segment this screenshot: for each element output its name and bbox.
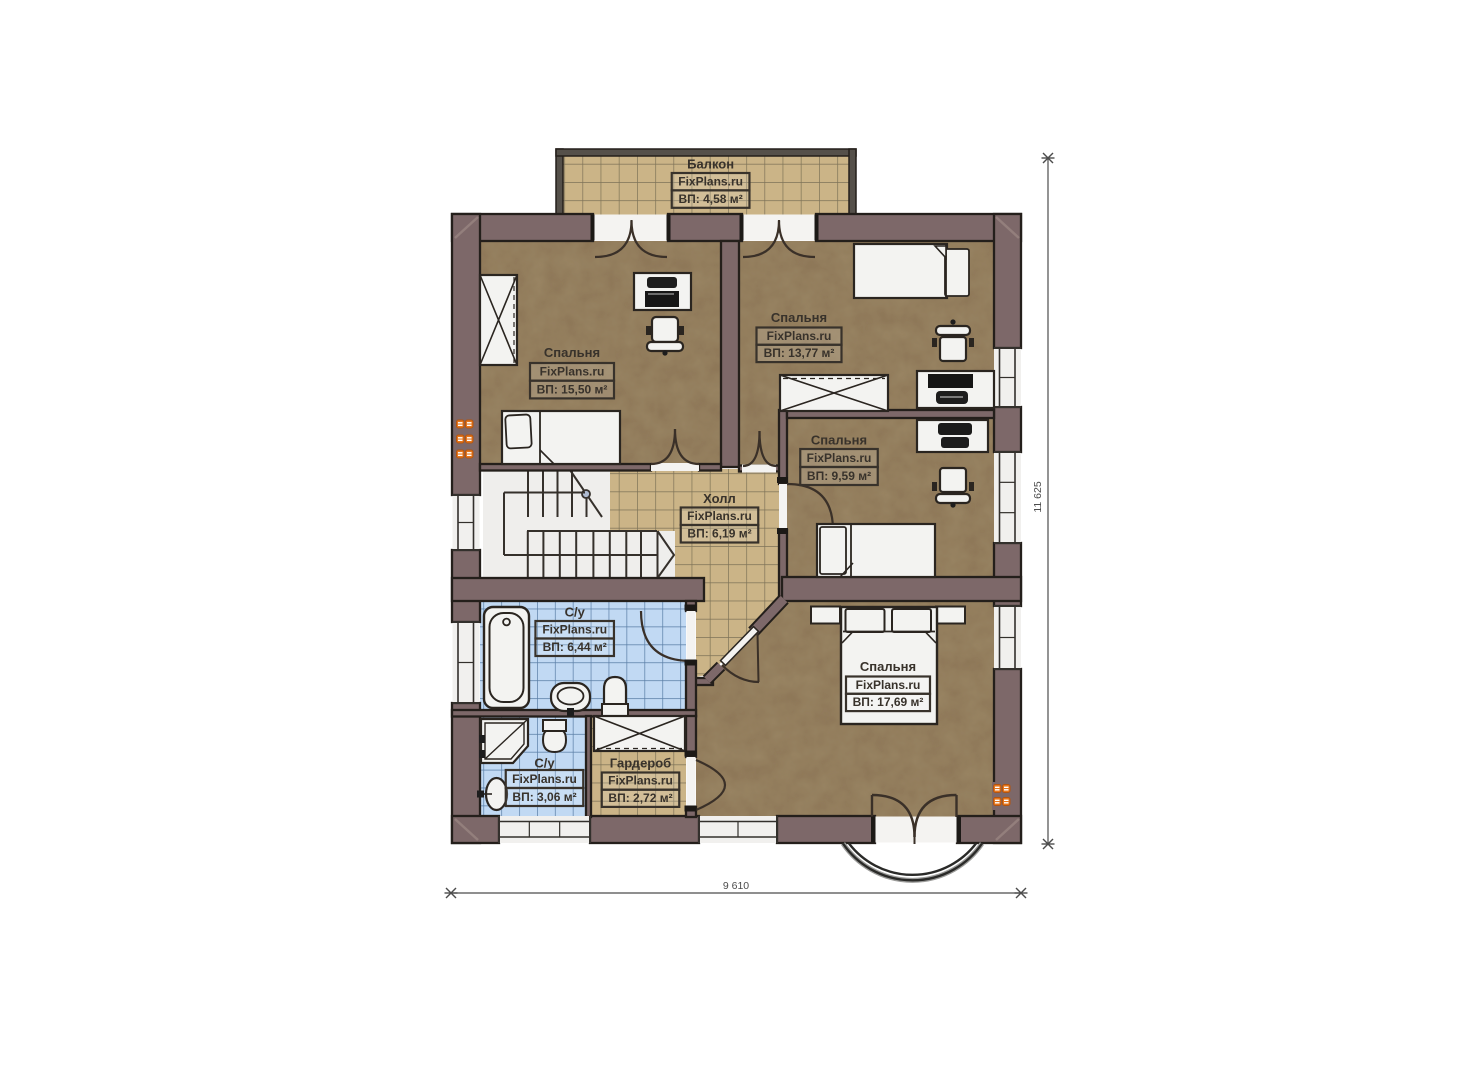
svg-text:FixPlans.ru: FixPlans.ru	[542, 623, 607, 637]
svg-text:ВП: 17,69 м²: ВП: 17,69 м²	[853, 695, 924, 709]
svg-text:Спальня: Спальня	[544, 345, 600, 360]
svg-text:FixPlans.ru: FixPlans.ru	[856, 678, 921, 692]
svg-text:FixPlans.ru: FixPlans.ru	[807, 451, 872, 465]
svg-text:9 610: 9 610	[723, 880, 749, 892]
svg-text:С/у: С/у	[565, 605, 586, 620]
svg-text:11 625: 11 625	[1032, 481, 1044, 512]
svg-text:Балкон: Балкон	[687, 157, 734, 172]
svg-text:Спальня: Спальня	[771, 310, 827, 325]
svg-text:ВП: 6,44 м²: ВП: 6,44 м²	[543, 640, 607, 654]
svg-text:FixPlans.ru: FixPlans.ru	[608, 774, 673, 788]
svg-text:ВП: 4,58 м²: ВП: 4,58 м²	[679, 192, 743, 206]
svg-text:FixPlans.ru: FixPlans.ru	[678, 174, 743, 188]
svg-text:FixPlans.ru: FixPlans.ru	[767, 329, 832, 343]
svg-text:С/у: С/у	[534, 756, 555, 771]
svg-text:FixPlans.ru: FixPlans.ru	[687, 509, 752, 523]
svg-text:FixPlans.ru: FixPlans.ru	[540, 365, 605, 379]
svg-text:Гардероб: Гардероб	[610, 756, 671, 771]
svg-text:Холл: Холл	[703, 491, 736, 506]
svg-text:ВП: 13,77 м²: ВП: 13,77 м²	[764, 346, 835, 360]
svg-text:ВП: 9,59 м²: ВП: 9,59 м²	[807, 469, 871, 483]
svg-text:ВП: 2,72 м²: ВП: 2,72 м²	[608, 791, 672, 805]
svg-text:Спальня: Спальня	[860, 659, 916, 674]
svg-text:ВП: 15,50 м²: ВП: 15,50 м²	[537, 382, 608, 396]
svg-text:FixPlans.ru: FixPlans.ru	[512, 772, 577, 786]
svg-text:Спальня: Спальня	[811, 433, 867, 448]
svg-text:ВП: 6,19 м²: ВП: 6,19 м²	[687, 527, 751, 541]
svg-text:ВП: 3,06 м²: ВП: 3,06 м²	[512, 790, 576, 804]
